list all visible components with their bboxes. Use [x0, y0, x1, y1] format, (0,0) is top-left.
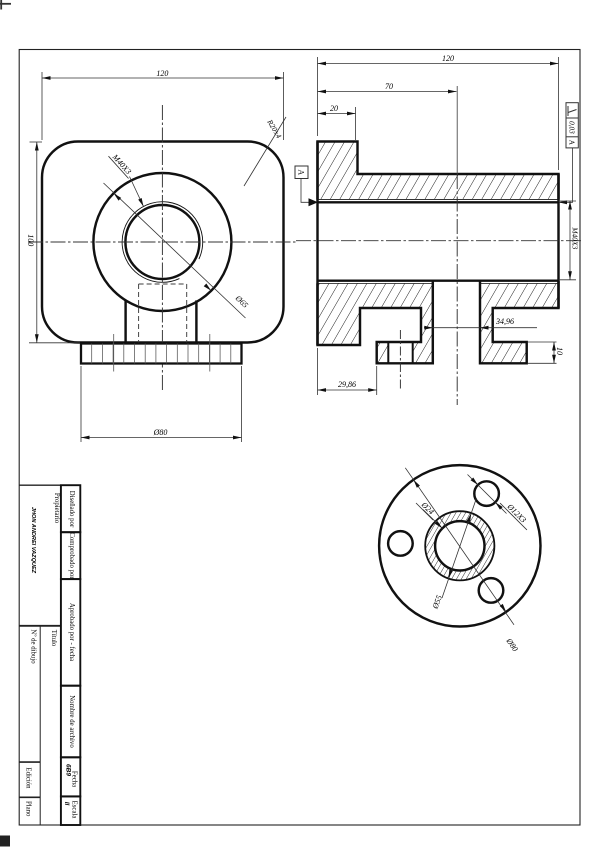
- svg-text:120: 120: [442, 54, 454, 63]
- svg-text:Comprobado por: Comprobado por: [68, 532, 75, 579]
- svg-text:10: 10: [555, 347, 564, 355]
- svg-text:Diseñado por: Diseñado por: [68, 491, 75, 528]
- svg-text:II: II: [63, 802, 70, 806]
- svg-text:Título: Título: [50, 630, 57, 647]
- svg-text:6B9: 6B9: [65, 764, 72, 776]
- svg-text:34,96: 34,96: [495, 317, 514, 326]
- svg-text:120: 120: [156, 69, 168, 78]
- svg-text:A: A: [297, 169, 306, 175]
- svg-text:70: 70: [385, 82, 393, 91]
- svg-text:A: A: [568, 140, 576, 146]
- svg-text:Propietario: Propietario: [53, 493, 60, 524]
- svg-text:Escala: Escala: [71, 801, 78, 819]
- svg-text:0,03: 0,03: [568, 121, 576, 134]
- svg-text:Ø80: Ø80: [153, 428, 168, 437]
- svg-text:Edición: Edición: [24, 767, 31, 789]
- svg-text:M40X3: M40X3: [570, 226, 579, 249]
- svg-text:JHON ANDREI VAZQUEZ: JHON ANDREI VAZQUEZ: [30, 507, 36, 574]
- svg-text:100: 100: [26, 234, 35, 246]
- svg-text:Aprobado por - fecha: Aprobado por - fecha: [68, 603, 75, 661]
- svg-text:29,86: 29,86: [338, 380, 356, 389]
- svg-text:Nº de dibujo: Nº de dibujo: [29, 629, 36, 664]
- svg-text:Nombre de archivo: Nombre de archivo: [68, 695, 75, 748]
- svg-text:20: 20: [330, 104, 338, 113]
- svg-text:Plano: Plano: [24, 801, 31, 817]
